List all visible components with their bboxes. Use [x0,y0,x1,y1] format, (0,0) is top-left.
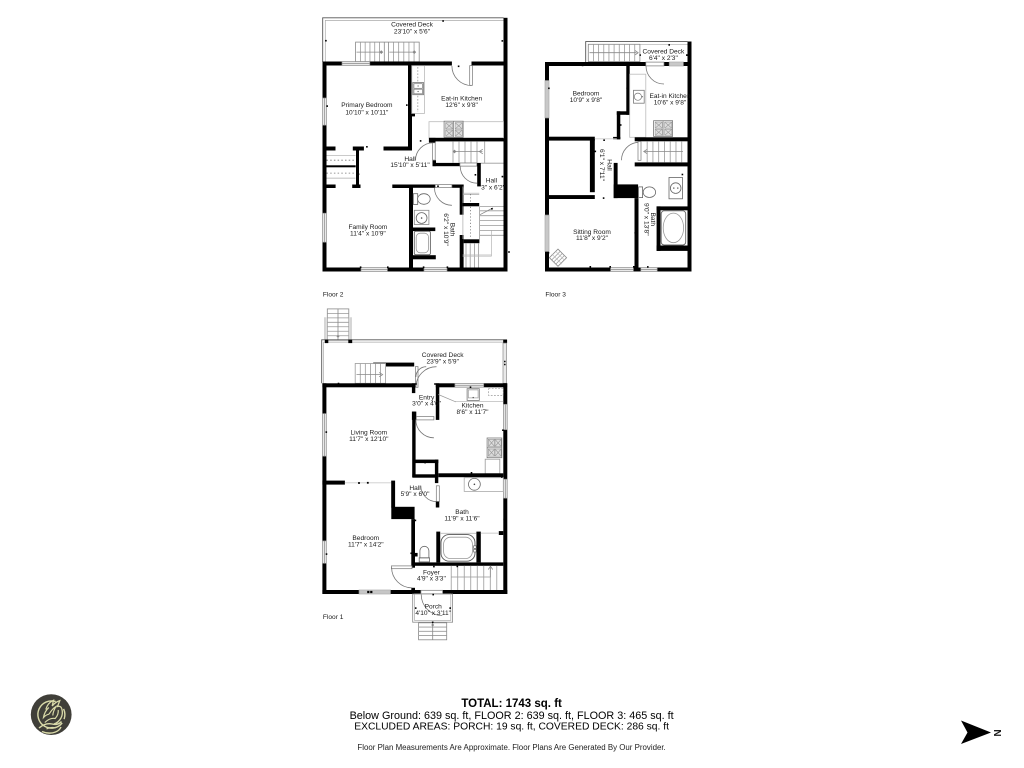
svg-text:Floor 1: Floor 1 [323,614,344,621]
svg-text:Covered Deck: Covered Deck [391,22,433,29]
svg-text:10'10" x 10'11": 10'10" x 10'11" [345,109,389,116]
svg-text:Floor Plan Measurements Are Ap: Floor Plan Measurements Are Approximate.… [357,743,665,752]
svg-text:N: N [991,729,1002,736]
svg-text:TOTAL: 1743 sq. ft: TOTAL: 1743 sq. ft [461,698,562,710]
svg-text:'3" x 6'2": '3" x 6'2" [480,184,506,191]
svg-text:9'0" x 13'8": 9'0" x 13'8" [643,203,650,236]
svg-text:8'6" x 11'7": 8'6" x 11'7" [456,409,489,416]
svg-text:12'6" x 9'8": 12'6" x 9'8" [445,102,478,109]
svg-text:4'9" x 3'3": 4'9" x 3'3" [417,576,446,583]
svg-text:23'9" x 5'9": 23'9" x 5'9" [426,358,459,365]
svg-text:5'9" x 6'0": 5'9" x 6'0" [401,491,430,498]
svg-text:Hall: Hall [606,159,613,171]
svg-text:10'6" x 9'8": 10'6" x 9'8" [654,99,687,106]
svg-text:6'2" x 10'9": 6'2" x 10'9" [442,213,449,246]
svg-text:3'0" x 4'0": 3'0" x 4'0" [412,401,441,408]
svg-text:11'7" x 14'2": 11'7" x 14'2" [348,542,384,549]
svg-text:6'4" x 2'3": 6'4" x 2'3" [649,55,678,62]
svg-text:Floor 2: Floor 2 [323,292,344,299]
svg-text:Floor 3: Floor 3 [545,292,566,299]
svg-text:11'9" x 11'6": 11'9" x 11'6" [444,516,480,523]
svg-text:11'8" x 9'2": 11'8" x 9'2" [576,235,609,242]
svg-text:Primary Bedroom: Primary Bedroom [341,102,393,109]
svg-text:Below Ground: 639 sq. ft, FLOO: Below Ground: 639 sq. ft, FLOOR 2: 639 s… [350,710,674,722]
svg-text:EXCLUDED AREAS: PORCH: 19 sq.: EXCLUDED AREAS: PORCH: 19 sq. ft, COVERE… [354,721,669,732]
svg-text:23'10" x 5'6": 23'10" x 5'6" [394,29,431,36]
svg-text:11'4" x 10'9": 11'4" x 10'9" [350,230,386,237]
svg-text:6'1" x 7'11": 6'1" x 7'11" [598,149,605,182]
svg-text:4'10" x 3'11": 4'10" x 3'11" [415,610,451,617]
svg-text:10'9" x 9'8": 10'9" x 9'8" [570,97,603,104]
svg-text:11'7" x 12'10": 11'7" x 12'10" [349,436,389,443]
svg-text:15'10" x 5'11": 15'10" x 5'11" [390,162,430,169]
